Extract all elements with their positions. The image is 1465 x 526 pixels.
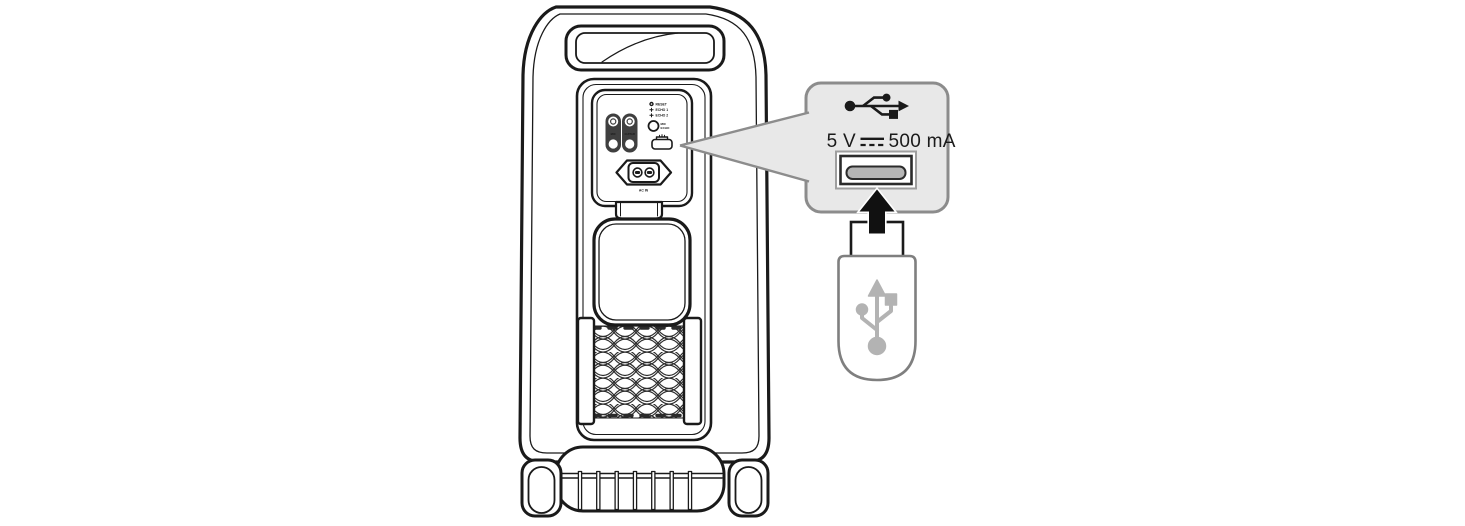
- reset-label: RESET: [656, 103, 668, 107]
- mic-jack-label: MIC: [611, 132, 616, 136]
- roller-bar: [556, 447, 724, 511]
- mesh-net: [592, 326, 686, 418]
- reset-indicator: RESET: [649, 102, 667, 107]
- mic-jack: MIC: [606, 114, 622, 153]
- mesh-rail-left: [578, 318, 594, 424]
- speaker-rear-view: RESET ECHO 1 ECHO 2 MIC ECHO: [520, 7, 769, 516]
- connector-panel: RESET ECHO 1 ECHO 2 MIC ECHO: [592, 90, 692, 219]
- usb-flash-drive: [839, 222, 916, 380]
- mesh-rail-right: [684, 318, 701, 424]
- rating-voltage: 5 V: [827, 131, 856, 152]
- echo2-label: ECHO 2: [656, 114, 669, 118]
- panel-latch: [616, 202, 662, 219]
- ac-in-label: AC IN: [639, 189, 649, 193]
- compartment-door: [594, 219, 690, 325]
- carry-handle: [566, 26, 724, 70]
- usb-port-diagram: [836, 152, 916, 189]
- guitar-jack: GUITAR: [622, 114, 638, 153]
- rating-current: 500 mA: [889, 131, 956, 152]
- echo1-label: ECHO 1: [656, 108, 669, 112]
- knob-label-line2: ECHO: [661, 126, 671, 130]
- wheel-left: [522, 460, 561, 516]
- wheel-right: [729, 460, 768, 516]
- mesh-pocket: [578, 318, 701, 424]
- illustration-canvas: RESET ECHO 1 ECHO 2 MIC ECHO: [0, 0, 1465, 526]
- guitar-jack-label: GUITAR: [624, 132, 635, 136]
- manual-illustration: RESET ECHO 1 ECHO 2 MIC ECHO: [0, 0, 1465, 526]
- usb-port-slot: [847, 167, 906, 180]
- power-rating: 5 V 500 mA: [827, 131, 956, 152]
